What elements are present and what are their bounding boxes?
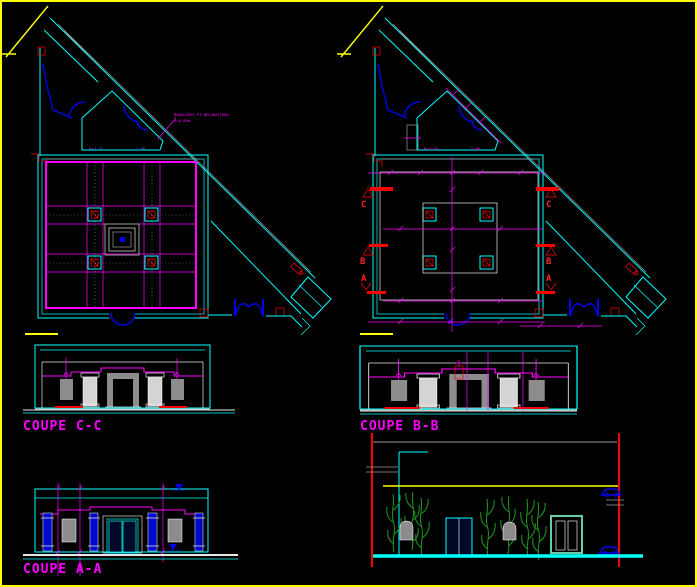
stair-block bbox=[407, 125, 418, 150]
parapet-crenellations bbox=[108, 504, 146, 506]
main-door bbox=[103, 516, 142, 553]
dim-entrance-height-right: H=3.10 bbox=[424, 146, 438, 151]
prayer-mat-hatching bbox=[49, 166, 194, 306]
window-left bbox=[62, 519, 76, 542]
facade-elevation bbox=[366, 433, 643, 567]
section-marker-letter-b: B bbox=[360, 257, 366, 267]
section-marker-letter-a: A bbox=[361, 274, 367, 284]
room-number-tags bbox=[64, 128, 180, 291]
section-coupe-cc bbox=[23, 345, 235, 413]
section-marker-letter-c: C bbox=[546, 200, 551, 210]
cad-drawing-canvas: MODELURES ET DECORATIONS h=0.80m H=3.10 … bbox=[0, 0, 697, 587]
dimension-lines bbox=[368, 88, 602, 332]
floor-plan-left: MODELURES ET DECORATIONS h=0.80m H=3.10 … bbox=[2, 6, 331, 335]
section-b-triangle-icon bbox=[546, 247, 556, 255]
section-marker-letter-b: B bbox=[546, 257, 552, 267]
section-coupe-bb bbox=[360, 346, 577, 414]
label-coupe-bb: COUPE B-B bbox=[360, 419, 439, 434]
dim-entrance-width-right: 2.80 bbox=[471, 146, 481, 151]
annotation-text-line2: h=0.80m bbox=[174, 118, 191, 123]
car-icon bbox=[598, 547, 620, 555]
level-marker-icon bbox=[166, 544, 180, 550]
window-right bbox=[168, 519, 182, 542]
label-coupe-cc: COUPE C-C bbox=[23, 419, 102, 434]
arched-niche-right bbox=[503, 522, 516, 540]
central-dome-opening bbox=[105, 224, 139, 255]
dim-entrance-height: H=3.10 bbox=[89, 146, 103, 151]
section-marker-letter-a: A bbox=[546, 274, 552, 284]
dimension-value-tags bbox=[395, 80, 582, 324]
garage-gate bbox=[551, 516, 582, 553]
arched-niche-left bbox=[400, 521, 413, 540]
label-coupe-aa: COUPE A-A bbox=[23, 562, 102, 577]
annotation-text-line1: MODELURES ET DECORATIONS bbox=[174, 112, 230, 117]
entrance-door bbox=[446, 518, 472, 557]
floor-plan-right: C C B B A A H=3.10 2.80 bbox=[337, 6, 666, 335]
dim-entrance-width: 2.80 bbox=[136, 146, 146, 151]
section-b-triangle-icon bbox=[363, 247, 373, 255]
section-marker-letter-c: C bbox=[361, 200, 366, 210]
drawing-svg: MODELURES ET DECORATIONS h=0.80m H=3.10 … bbox=[0, 0, 697, 587]
